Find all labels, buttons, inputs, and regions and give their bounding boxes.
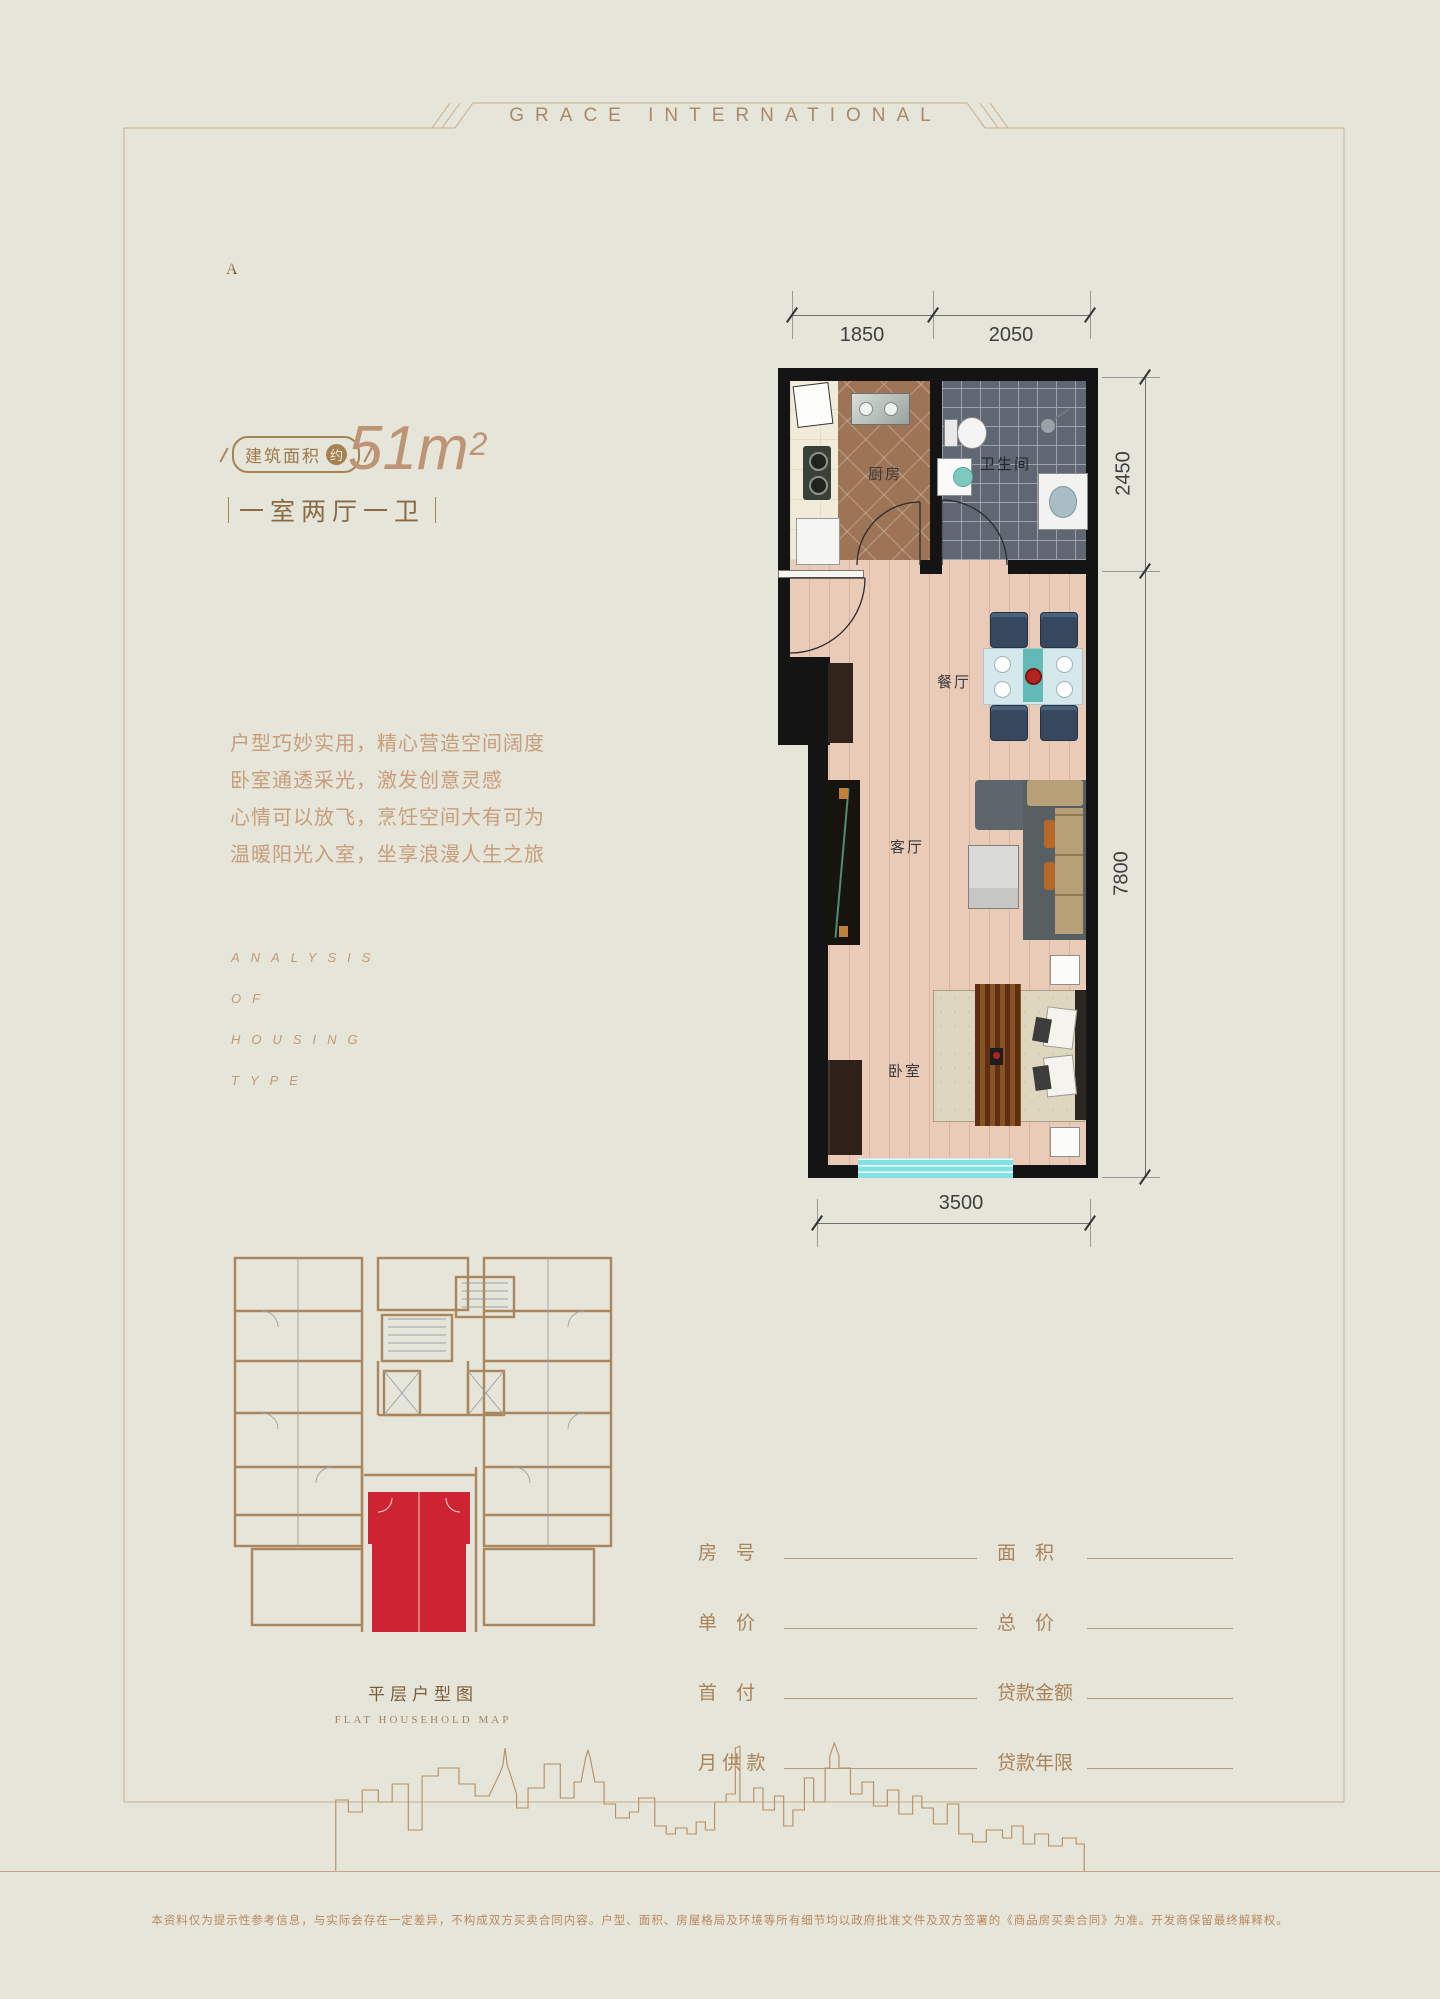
room-label-bathroom: 卫生间 [980,453,1031,474]
form-row: 单 价 总 价 [698,1608,1233,1634]
extension-line [1102,571,1160,572]
room-label-dining: 餐厅 [937,671,971,692]
layout-type: 一室两厅一卫 [228,492,436,528]
field-blank-line [784,1558,977,1559]
dimension-line-bottom [817,1223,1090,1224]
area-exponent: 2 [470,426,488,462]
brochure-page: GRACE INTERNATIONAL A 建筑面积 约 51m2 一室两厅一卫… [0,0,1440,1999]
area-value: 51m2 [348,413,487,484]
field-blank-line [784,1698,977,1699]
description-paragraph: 户型巧妙实用，精心营造空间阔度 卧室通透采光，激发创意灵感 心情可以放飞，烹饪空… [230,726,545,874]
brand-title: GRACE INTERNATIONAL [455,105,985,127]
room-label-kitchen: 厨房 [868,463,902,484]
field-blank-line [1087,1698,1233,1699]
building-key-plan [232,1253,614,1633]
floorplan: 厨房 卫生间 餐厅 客厅 卧室 [778,368,1098,1178]
divider-bar [228,497,229,523]
door-arcs [778,368,1098,1178]
dim-right-top: 2450 [1113,434,1136,514]
field-blank-line [1087,1768,1233,1769]
field-label-area: 面 积 [997,1538,1054,1565]
built-area-label: 建筑面积 [245,442,321,467]
field-blank-line [784,1628,977,1629]
approx-circle-badge: 约 [326,444,347,465]
analysis-caption: ANALYSIS OF HOUSING TYPE [231,950,381,1114]
room-label-bedroom: 卧室 [888,1060,922,1081]
field-label-down-payment: 首 付 [698,1678,755,1705]
dimension-line-top [792,315,1090,316]
divider-bar [435,497,436,523]
dimension-line-right [1145,377,1146,1177]
form-row: 房 号 面 积 [698,1538,1233,1564]
keyplan-subtitle: FLAT HOUSEHOLD MAP [232,1714,614,1726]
keyplan-title: 平层户型图 [232,1680,614,1705]
dim-top-left: 1850 [822,324,902,347]
extension-line [1102,377,1160,378]
slash-decoration-left [219,447,228,462]
disclaimer-text: 本资料仅为提示性参考信息，与实际会存在一定差异，不构成双方买卖合同内容。户型、面… [0,1912,1440,1928]
city-skyline-illustration [330,1738,1090,1873]
field-blank-line [1087,1558,1233,1559]
form-row: 首 付 贷款金额 [698,1678,1233,1704]
skyline-baseline [0,1871,1440,1872]
field-label-room-number: 房 号 [698,1538,755,1565]
dim-bottom: 3500 [921,1192,1001,1215]
room-label-living: 客厅 [890,836,924,857]
built-area-badge: 建筑面积 约 [232,436,360,473]
field-blank-line [1087,1628,1233,1629]
extension-line [1102,1177,1160,1178]
dim-right-bottom: 7800 [1111,834,1134,914]
field-label-loan-amount: 贷款金额 [997,1678,1073,1705]
field-label-unit-price: 单 价 [698,1608,755,1635]
dim-top-right: 2050 [971,324,1051,347]
unit-letter: A [226,262,238,278]
field-label-total-price: 总 价 [997,1608,1054,1635]
